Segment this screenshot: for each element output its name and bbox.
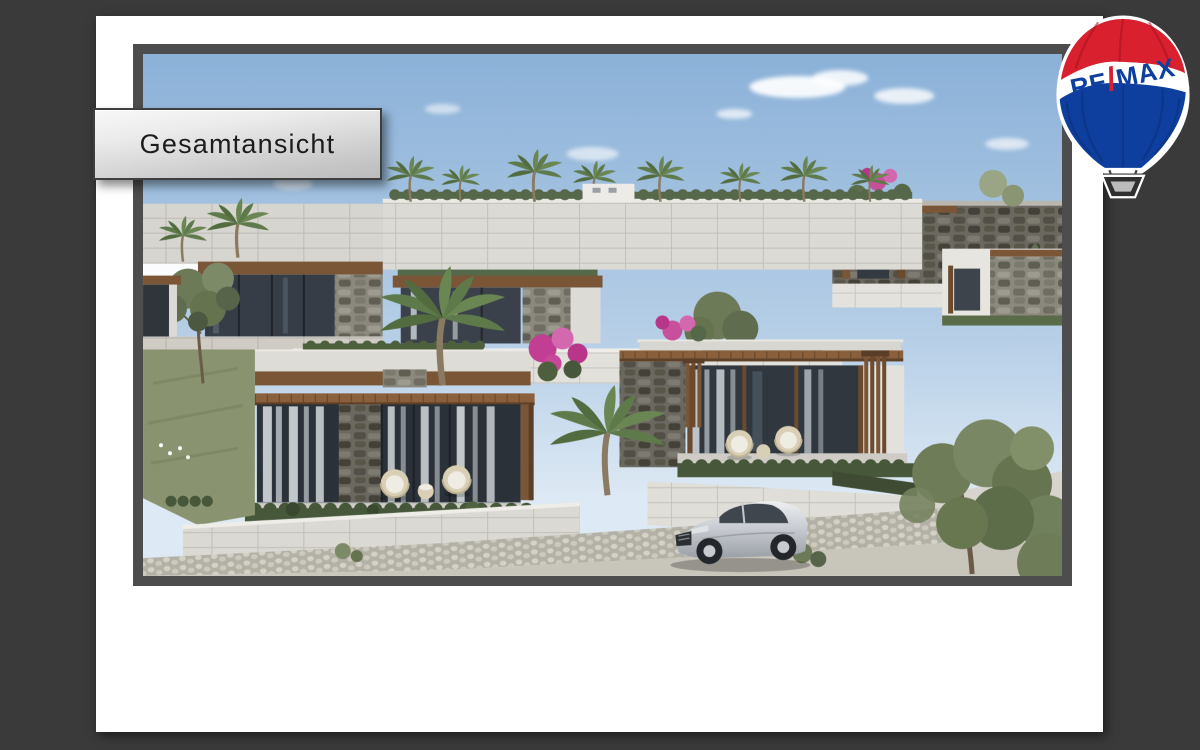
caption-banner: Gesamtansicht xyxy=(93,108,382,180)
caption-text: Gesamtansicht xyxy=(140,129,336,160)
left-edge-building xyxy=(143,276,181,337)
remax-balloon-icon: RE/MAX xyxy=(1044,12,1200,220)
page-background: { "page": { "background": "#3a3a3a" }, "… xyxy=(0,0,1200,750)
remax-balloon-logo: RE/MAX xyxy=(1044,12,1200,220)
right-white-villa xyxy=(942,249,1062,326)
slide: Gesamtansicht xyxy=(96,16,1103,732)
front-left-villa xyxy=(239,349,535,523)
